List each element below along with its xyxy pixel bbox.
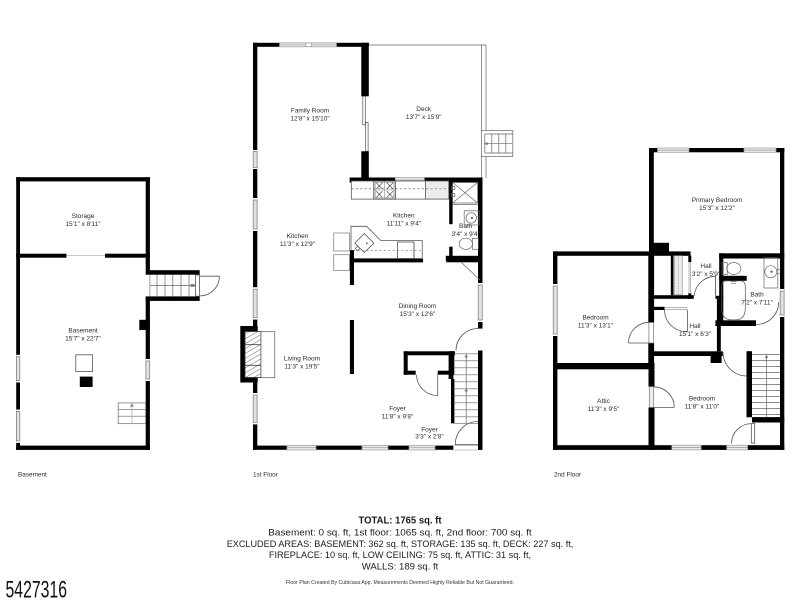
svg-text:7'2" x 7'11": 7'2" x 7'11" (741, 300, 773, 307)
svg-text:11'3" x 12'9": 11'3" x 12'9" (280, 241, 316, 248)
svg-text:Deck: Deck (416, 106, 432, 113)
svg-text:Attic: Attic (597, 398, 610, 405)
svg-text:15'3" x 12'6": 15'3" x 12'6" (400, 311, 436, 318)
svg-text:Basement: Basement (18, 472, 47, 479)
svg-text:Family Room: Family Room (291, 108, 329, 115)
svg-text:1st Floor: 1st Floor (253, 472, 279, 479)
svg-text:Bath: Bath (459, 223, 473, 230)
svg-text:15'1" x 6'3": 15'1" x 6'3" (679, 331, 712, 338)
svg-text:3'3" x 2'8": 3'3" x 2'8" (415, 433, 444, 440)
svg-text:15'7" x 22'7": 15'7" x 22'7" (65, 336, 101, 343)
svg-text:Hall: Hall (689, 323, 701, 330)
svg-text:Storage: Storage (72, 213, 95, 220)
svg-text:11'11" x 9'4": 11'11" x 9'4" (386, 220, 421, 227)
svg-text:Foyer: Foyer (421, 426, 438, 433)
svg-text:Bedroom: Bedroom (582, 315, 608, 322)
svg-text:11'3" x 19'5": 11'3" x 19'5" (284, 364, 320, 371)
svg-text:Kitchen: Kitchen (393, 212, 415, 219)
svg-text:WALLS: 189 sq. ft: WALLS: 189 sq. ft (362, 561, 439, 572)
svg-text:5427316: 5427316 (6, 577, 68, 600)
svg-text:Bedroom: Bedroom (689, 396, 715, 403)
svg-text:Floor Plan Created By Cubicasa: Floor Plan Created By Cubicasa App. Meas… (286, 580, 514, 586)
svg-text:Basement: 0 sq. ft, 1st floor:: Basement: 0 sq. ft, 1st floor: 1065 sq. … (268, 526, 532, 537)
svg-text:TOTAL: 1765 sq. ft: TOTAL: 1765 sq. ft (359, 516, 442, 527)
svg-text:3'4" x 9'4": 3'4" x 9'4" (451, 231, 480, 238)
svg-text:Primary Bedroom: Primary Bedroom (692, 197, 743, 204)
svg-text:Basement: Basement (68, 328, 97, 335)
svg-text:15'1" x 8'11": 15'1" x 8'11" (65, 221, 101, 228)
svg-text:Living Room: Living Room (284, 356, 320, 363)
svg-text:Hall: Hall (700, 263, 712, 270)
svg-text:3'2" x 5'9": 3'2" x 5'9" (692, 271, 721, 278)
svg-text:Bath: Bath (750, 292, 764, 299)
svg-text:13'7" x 15'9": 13'7" x 15'9" (406, 114, 442, 121)
svg-text:15'3" x 12'2": 15'3" x 12'2" (699, 205, 735, 212)
svg-text:11'8" x 9'8": 11'8" x 9'8" (382, 414, 414, 421)
svg-text:FIREPLACE: 10 sq. ft, LOW CEIL: FIREPLACE: 10 sq. ft, LOW CEILING: 75 sq… (269, 549, 531, 560)
svg-text:2nd Floor: 2nd Floor (554, 472, 582, 479)
svg-text:11'3" x 9'5": 11'3" x 9'5" (588, 406, 620, 413)
svg-text:EXCLUDED AREAS: BASEMENT: 362: EXCLUDED AREAS: BASEMENT: 362 sq. ft, ST… (227, 538, 574, 549)
svg-text:Foyer: Foyer (389, 406, 406, 413)
svg-text:11'3" x 13'1": 11'3" x 13'1" (578, 323, 614, 330)
svg-text:11'8" x 11'0": 11'8" x 11'0" (685, 404, 720, 411)
svg-text:12'8" x 15'10": 12'8" x 15'10" (290, 116, 330, 123)
svg-text:Kitchen: Kitchen (287, 233, 309, 240)
svg-text:Dining Room: Dining Room (399, 303, 437, 310)
